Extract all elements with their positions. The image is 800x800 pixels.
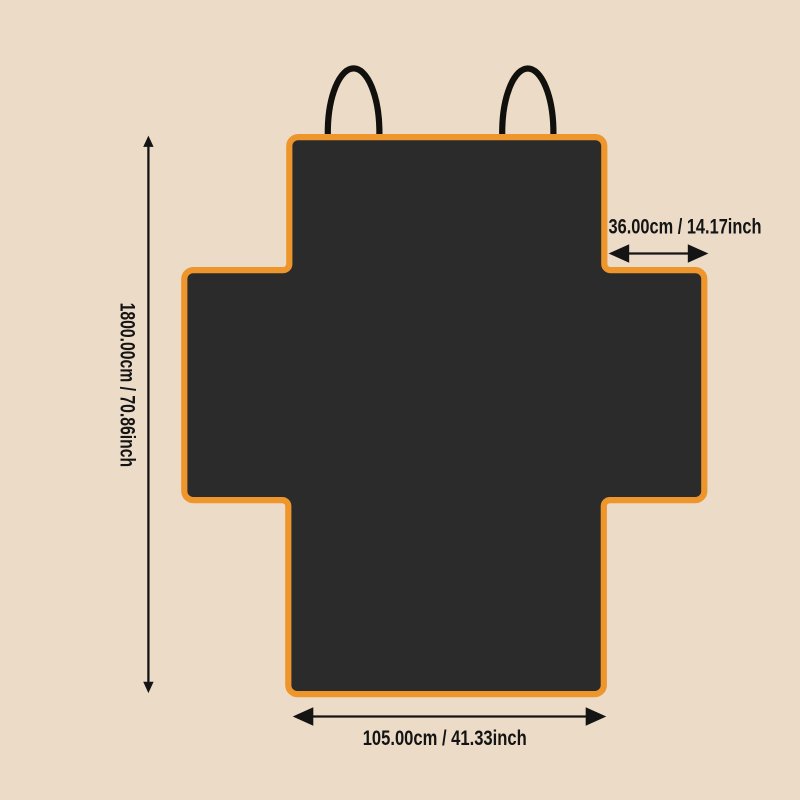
svg-text:1800.00cm / 70.86inch: 1800.00cm / 70.86inch: [116, 303, 140, 467]
svg-text:105.00cm / 41.33inch: 105.00cm / 41.33inch: [363, 727, 527, 750]
svg-text:36.00cm / 14.17inch: 36.00cm / 14.17inch: [609, 215, 762, 238]
